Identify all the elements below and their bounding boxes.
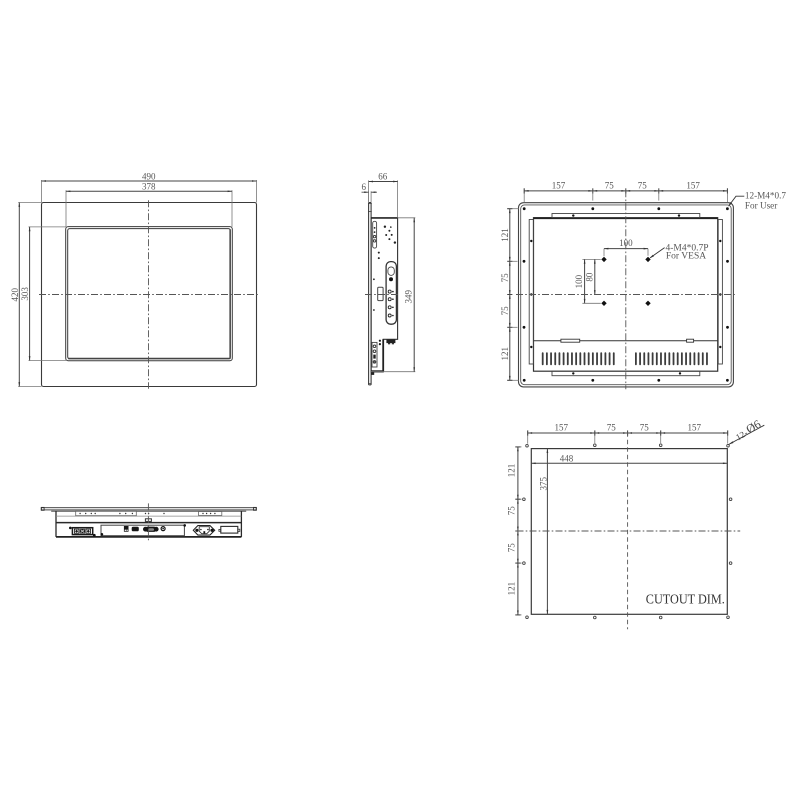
- svg-text:75: 75: [507, 506, 517, 516]
- svg-text:75: 75: [638, 180, 648, 190]
- svg-text:420: 420: [10, 288, 20, 302]
- svg-text:303: 303: [20, 287, 30, 301]
- svg-text:121: 121: [507, 582, 517, 596]
- svg-text:121: 121: [500, 347, 510, 361]
- svg-text:157: 157: [552, 180, 566, 190]
- svg-text:157: 157: [687, 423, 701, 433]
- svg-text:490: 490: [142, 171, 156, 181]
- svg-text:448: 448: [560, 453, 574, 463]
- svg-text:75: 75: [500, 306, 510, 316]
- svg-text:75: 75: [507, 543, 517, 553]
- svg-text:75: 75: [500, 273, 510, 283]
- svg-text:For VESA: For VESA: [666, 251, 706, 261]
- svg-text:75: 75: [607, 423, 617, 433]
- svg-text:100: 100: [574, 274, 584, 288]
- svg-text:80: 80: [584, 272, 594, 282]
- svg-text:121: 121: [500, 228, 510, 242]
- svg-text:CUTOUT DIM.: CUTOUT DIM.: [646, 592, 725, 607]
- svg-text:121: 121: [507, 464, 517, 478]
- svg-text:375: 375: [539, 477, 549, 491]
- svg-text:349: 349: [404, 290, 414, 304]
- svg-text:378: 378: [142, 182, 156, 192]
- svg-text:6: 6: [362, 182, 367, 192]
- svg-text:75: 75: [605, 180, 615, 190]
- svg-text:157: 157: [686, 180, 700, 190]
- svg-text:157: 157: [554, 423, 568, 433]
- svg-text:75: 75: [640, 423, 650, 433]
- svg-text:12-M4*0.7: 12-M4*0.7: [745, 190, 786, 200]
- svg-text:66: 66: [378, 172, 388, 182]
- svg-text:For User: For User: [745, 200, 777, 210]
